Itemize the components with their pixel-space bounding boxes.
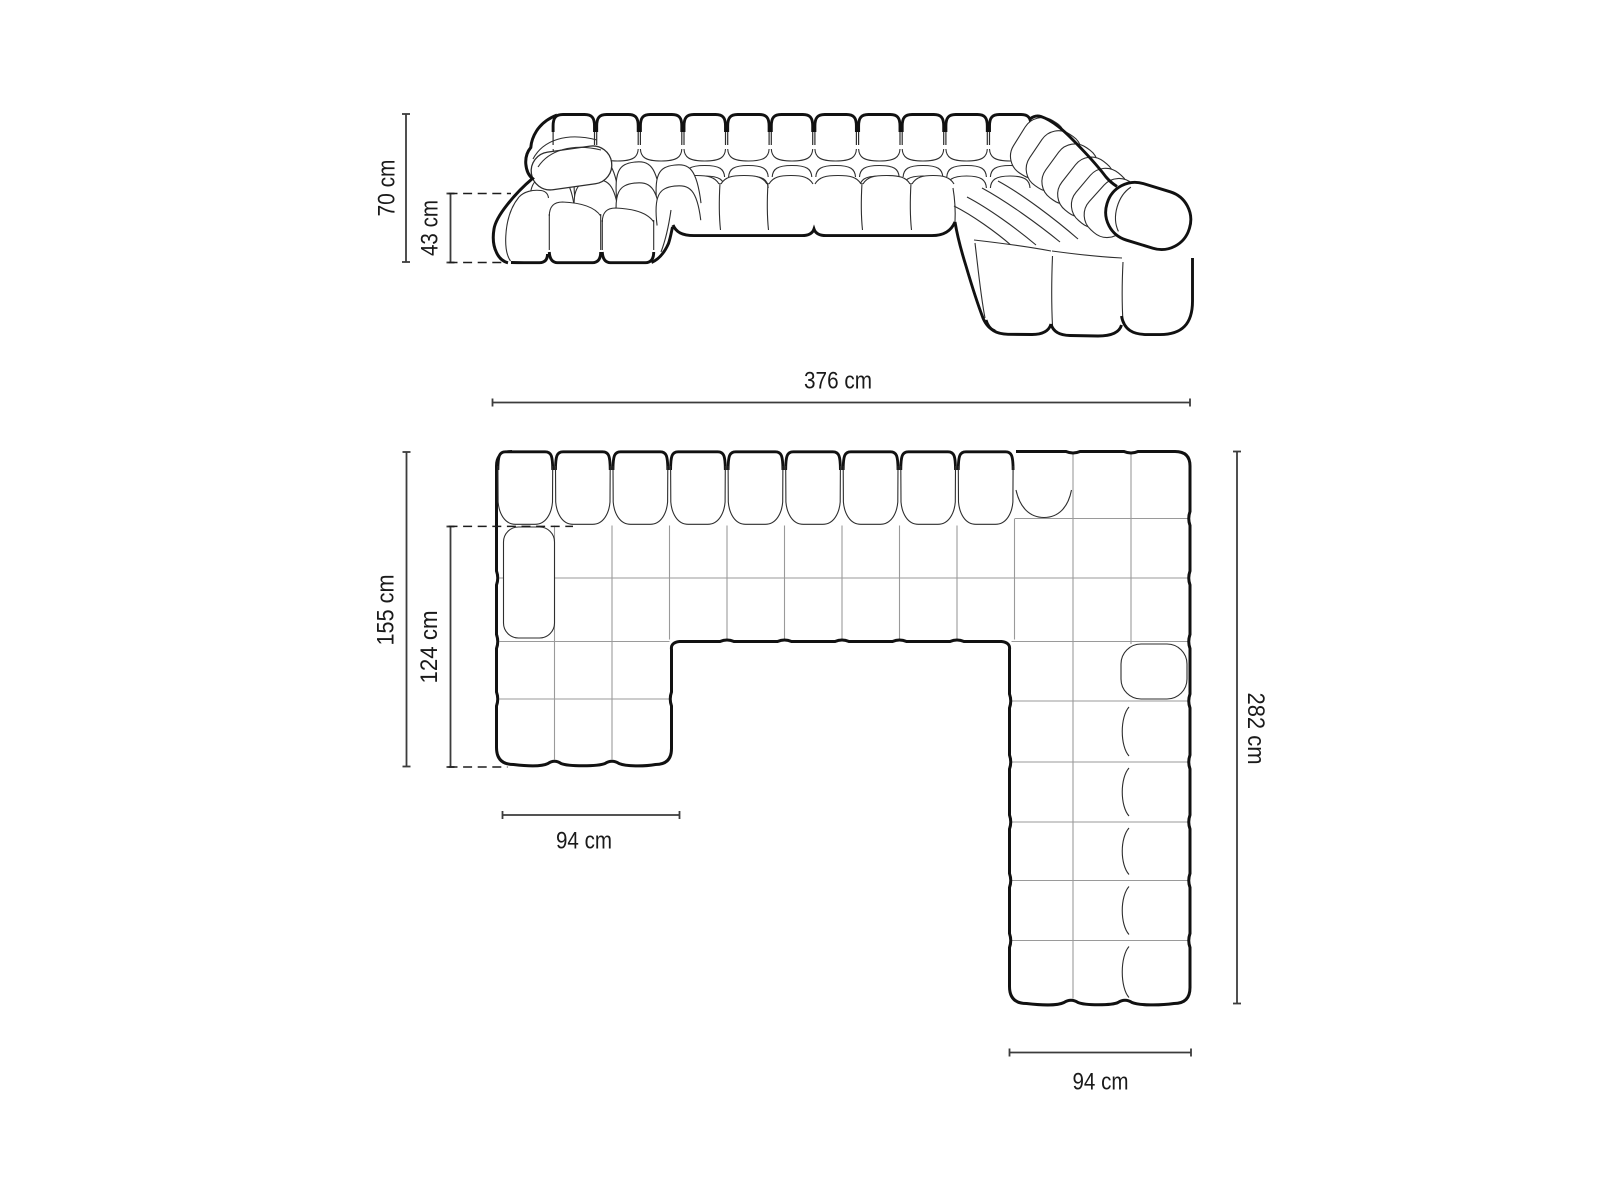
svg-text:94 cm: 94 cm [1073,1069,1129,1096]
svg-text:124 cm: 124 cm [416,611,443,684]
svg-text:70 cm: 70 cm [374,160,401,217]
svg-text:282 cm: 282 cm [1242,693,1269,765]
svg-text:376 cm: 376 cm [804,368,872,395]
svg-text:155 cm: 155 cm [373,575,400,646]
svg-text:94 cm: 94 cm [556,828,612,855]
svg-text:43 cm: 43 cm [417,200,444,256]
